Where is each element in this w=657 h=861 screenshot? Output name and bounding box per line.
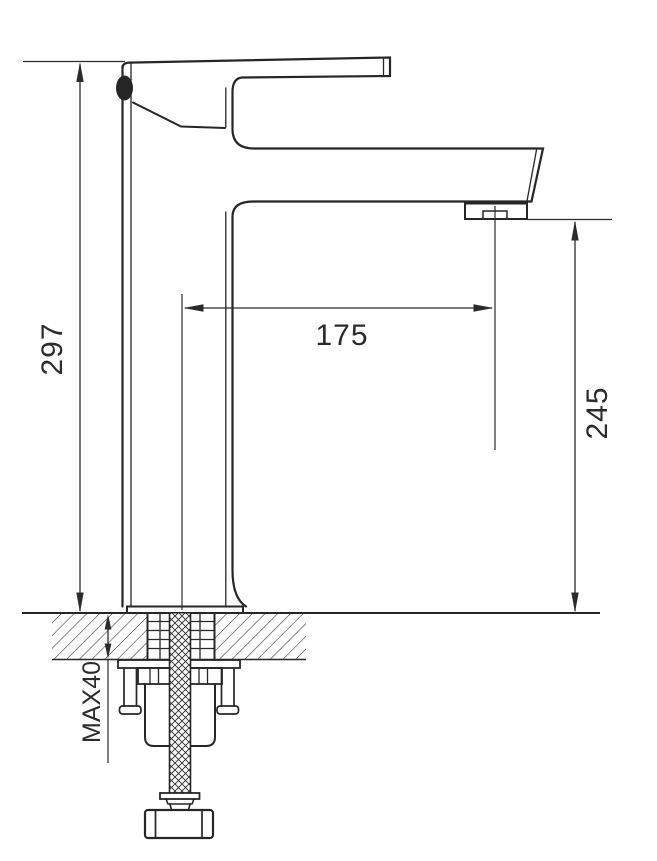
technical-drawing-sheet: 297 175 245 MAX40 [0, 0, 657, 861]
arrow-left-icon [184, 304, 204, 311]
dim-max40-label: MAX40 [78, 661, 106, 743]
arrow-down-icon [571, 593, 578, 613]
handle-cap-seam [133, 103, 225, 129]
dimension-175: 175 [182, 206, 495, 610]
arrow-right-icon [474, 304, 494, 311]
dimension-297: 297 [23, 62, 125, 613]
arrow-up-icon [76, 62, 83, 82]
spout-tip-inner-line [527, 150, 537, 201]
deck-hatch-left [52, 614, 147, 659]
threaded-rod [170, 614, 191, 794]
dim-175-label: 175 [315, 319, 368, 352]
tightening-knob [145, 810, 213, 838]
clamp-bolt-right [217, 668, 239, 714]
rod-flange [160, 793, 200, 810]
handle-indicator-dot [116, 76, 133, 101]
arrow-up-icon [571, 221, 578, 241]
faucet-technical-drawing: 297 175 245 MAX40 [0, 0, 657, 861]
dim-245-label: 245 [581, 386, 614, 439]
dim-297-label: 297 [36, 322, 69, 375]
arrow-down-icon [76, 593, 83, 613]
deck-hatch-right [215, 614, 306, 659]
dimension-245: 245 [527, 220, 614, 613]
